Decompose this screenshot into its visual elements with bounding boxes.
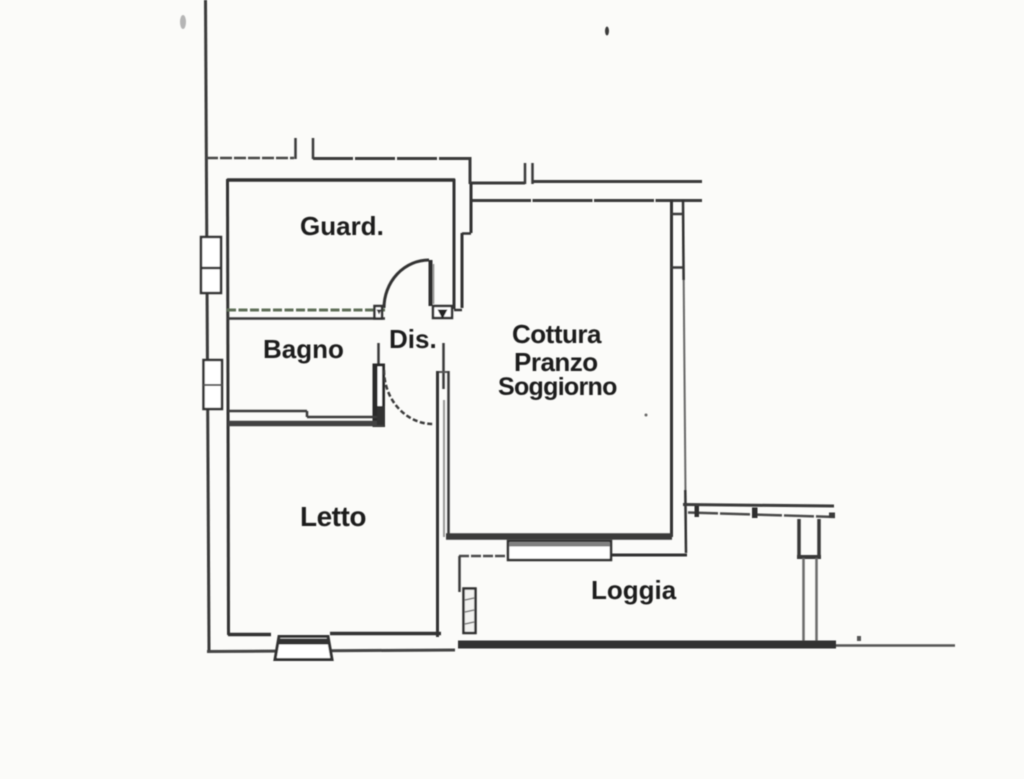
svg-text:Soggiorno: Soggiorno	[498, 373, 617, 401]
svg-text:Bagno: Bagno	[263, 334, 344, 364]
svg-text:Dis.: Dis.	[389, 324, 437, 354]
svg-text:Loggia: Loggia	[591, 575, 677, 605]
svg-text:Letto: Letto	[300, 501, 366, 532]
svg-text:Cottura: Cottura	[512, 319, 602, 349]
svg-text:Guard.: Guard.	[300, 211, 384, 241]
